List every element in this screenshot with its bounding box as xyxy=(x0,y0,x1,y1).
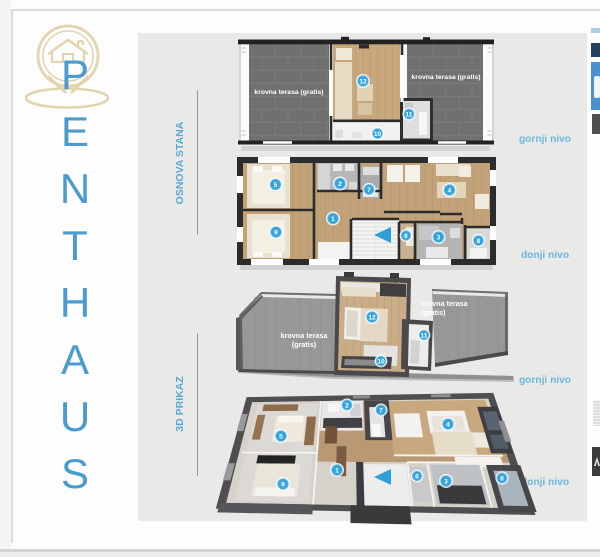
svg-text:9: 9 xyxy=(281,481,285,488)
svg-text:(gratis): (gratis) xyxy=(421,308,446,317)
svg-text:12: 12 xyxy=(368,314,376,321)
svg-text:1: 1 xyxy=(335,467,339,474)
svg-text:4: 4 xyxy=(446,421,450,428)
svg-text:4: 4 xyxy=(448,187,452,194)
svg-text:6: 6 xyxy=(415,473,419,480)
svg-text:7: 7 xyxy=(379,407,383,414)
svg-text:2: 2 xyxy=(345,402,349,409)
svg-text:7: 7 xyxy=(367,187,371,194)
svg-text:(gratis): (gratis) xyxy=(292,340,317,349)
svg-text:1: 1 xyxy=(331,216,335,223)
svg-text:5: 5 xyxy=(279,433,283,440)
svg-text:5: 5 xyxy=(274,182,278,189)
svg-text:8: 8 xyxy=(477,238,481,245)
svg-text:krovna terasa: krovna terasa xyxy=(421,299,469,308)
svg-text:10: 10 xyxy=(377,358,385,365)
svg-text:3: 3 xyxy=(437,234,441,241)
svg-text:krovna terasa (gratis): krovna terasa (gratis) xyxy=(411,74,480,81)
svg-text:10: 10 xyxy=(374,131,382,138)
svg-text:9: 9 xyxy=(274,229,278,236)
svg-text:8: 8 xyxy=(500,475,504,482)
svg-text:11: 11 xyxy=(406,111,413,118)
svg-text:11: 11 xyxy=(421,332,428,339)
svg-text:6: 6 xyxy=(404,233,408,240)
svg-text:2: 2 xyxy=(338,181,342,188)
svg-text:krovna terasa: krovna terasa xyxy=(281,331,329,340)
svg-text:krovna terasa (gratis): krovna terasa (gratis) xyxy=(254,89,323,96)
svg-text:12: 12 xyxy=(359,78,367,85)
svg-text:3: 3 xyxy=(444,478,448,485)
